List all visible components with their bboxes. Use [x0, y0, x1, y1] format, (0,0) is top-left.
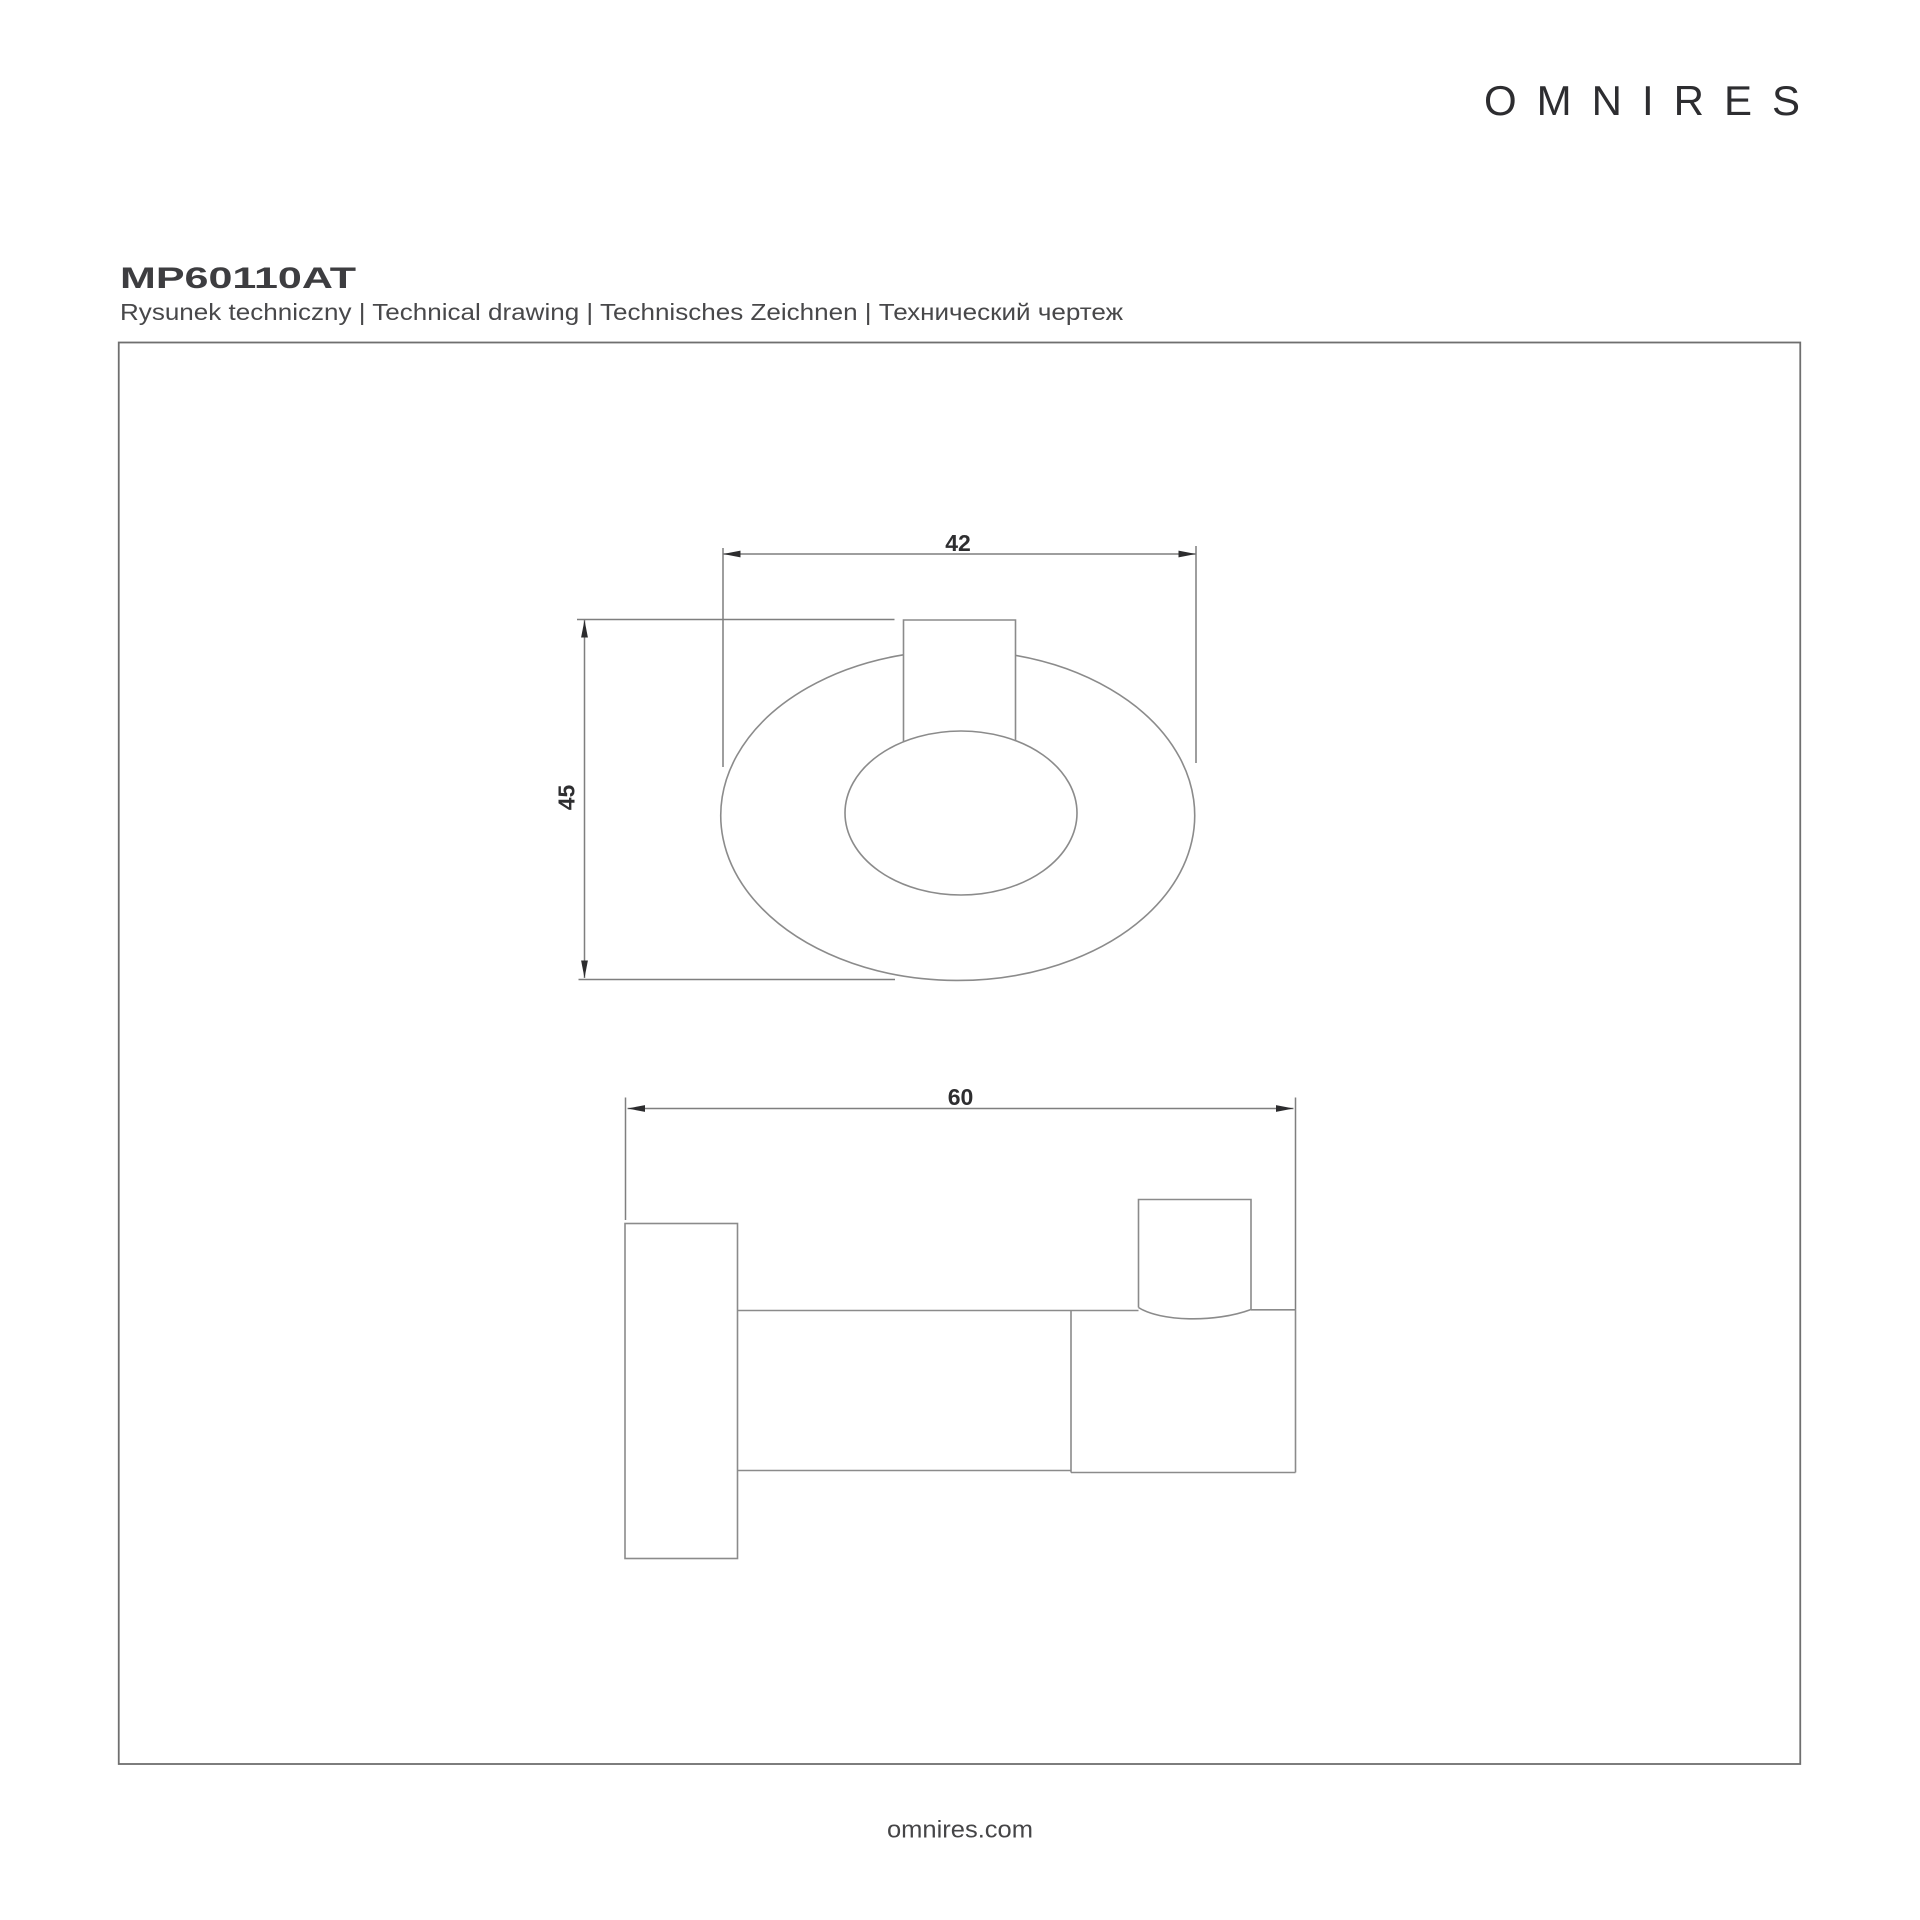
- svg-text:42: 42: [945, 530, 971, 556]
- svg-text:45: 45: [554, 785, 580, 811]
- svg-text:MP60110AT: MP60110AT: [120, 262, 356, 295]
- svg-text:60: 60: [948, 1084, 974, 1110]
- svg-text:Rysunek techniczny | Technical: Rysunek techniczny | Technical drawing |…: [120, 299, 1124, 325]
- svg-text:omnires.com: omnires.com: [887, 1817, 1033, 1844]
